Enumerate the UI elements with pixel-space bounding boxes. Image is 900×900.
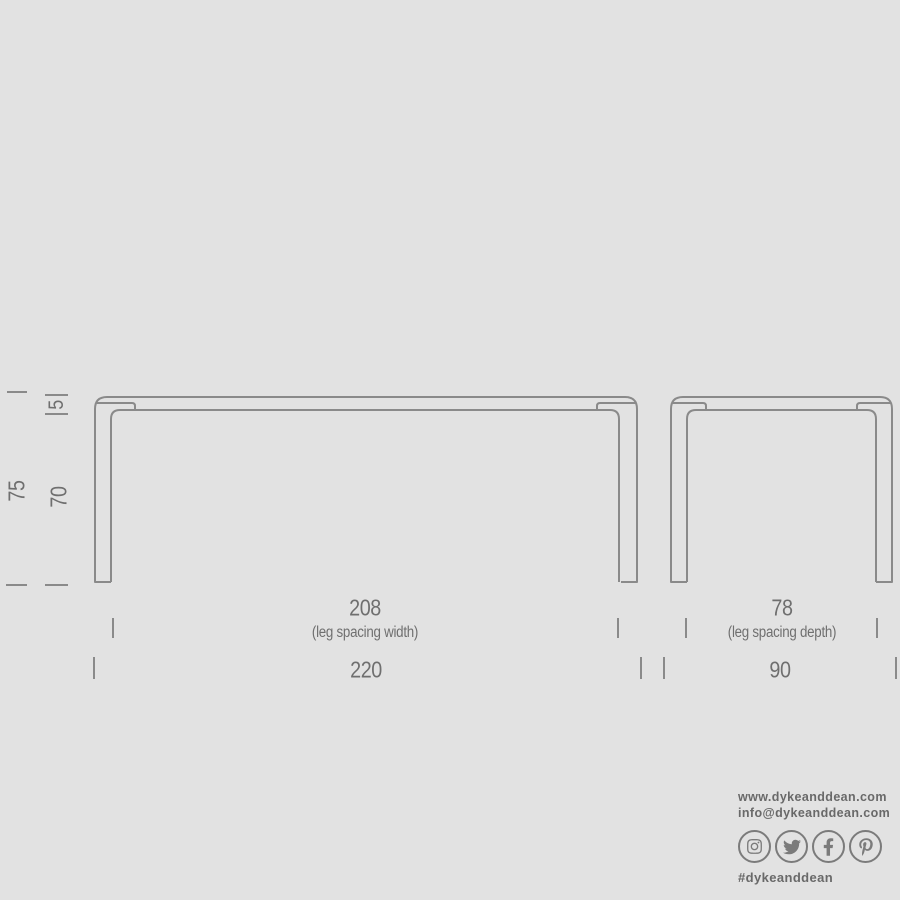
dimension-leg-spacing-depth: 78 xyxy=(771,595,792,622)
instagram-icon xyxy=(738,830,771,863)
dimension-total-height: 75 xyxy=(4,480,31,501)
dimension-leg-spacing-width: 208 xyxy=(349,595,381,622)
dimension-leg-spacing-width-caption: (leg spacing width) xyxy=(312,624,418,642)
facebook-icon xyxy=(812,830,845,863)
dimension-diagram: 75 70 5 208 (leg spacing width) 220 78 (… xyxy=(0,0,900,900)
dimension-total-depth: 90 xyxy=(769,657,790,684)
dimension-leg-spacing-depth-caption: (leg spacing depth) xyxy=(728,624,836,642)
side-view-outline xyxy=(671,397,892,582)
front-view-inner-outline xyxy=(111,410,619,582)
contact-email: info@dykeanddean.com xyxy=(738,805,900,821)
side-view-right-leg-plate xyxy=(857,403,891,410)
front-view-left-leg-plate xyxy=(96,403,135,410)
side-view-left-leg-plate xyxy=(672,403,706,410)
website-url: www.dykeanddean.com xyxy=(738,789,900,805)
front-view-right-leg-plate xyxy=(597,403,636,410)
dimension-clearance-height: 70 xyxy=(46,486,73,507)
table-line-drawing xyxy=(0,0,900,900)
pinterest-icon xyxy=(849,830,882,863)
branding-block: www.dykeanddean.com info@dykeanddean.com xyxy=(738,789,900,885)
hashtag-label: #dykeanddean xyxy=(738,870,900,885)
side-view-inner-outline xyxy=(687,410,876,582)
front-view-outline xyxy=(95,397,637,582)
social-icons-row xyxy=(738,830,900,863)
twitter-icon xyxy=(775,830,808,863)
dimension-total-width: 220 xyxy=(350,657,382,684)
dimension-top-thickness: 5 xyxy=(45,400,69,410)
